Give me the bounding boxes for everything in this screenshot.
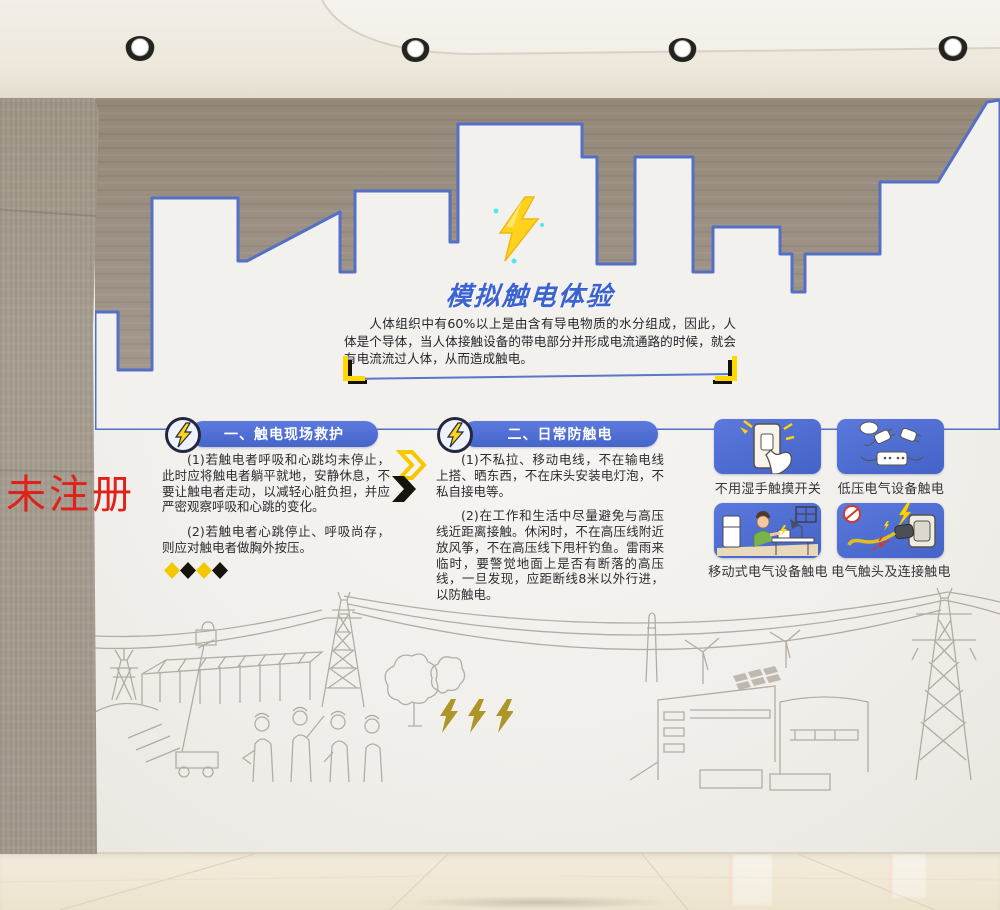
ceiling bbox=[0, 0, 1000, 98]
diamond-divider bbox=[163, 562, 231, 579]
wall-seam bbox=[0, 208, 102, 217]
spotlight bbox=[125, 36, 155, 61]
section-heading-label: 一、触电现场救护 bbox=[224, 424, 344, 444]
hazard-card bbox=[714, 419, 821, 474]
factory-drawing bbox=[630, 686, 868, 790]
portable-appliance-icon bbox=[714, 503, 821, 558]
section-paragraph: (2)若触电者心跳停止、呼吸尚存，则应对触电者做胸外按压。 bbox=[162, 524, 390, 556]
section-heading-prevention: 二、日常防触电 bbox=[462, 421, 658, 447]
section-paragraph: (1)不私拉、移动电线，不在输电线上搭、晒东西，不在床头安装电灯泡，不私自接电等… bbox=[436, 452, 664, 499]
left-side-wall bbox=[0, 0, 102, 854]
section-heading-label: 二、日常防触电 bbox=[508, 424, 613, 444]
kiosk-shadow bbox=[406, 896, 674, 909]
floor-reflection bbox=[730, 855, 772, 905]
small-tower-drawing bbox=[110, 648, 138, 700]
left-pylon-drawing bbox=[322, 592, 364, 707]
corner-bracket-right bbox=[715, 356, 737, 381]
kiosk-front-bolts-icon bbox=[437, 699, 513, 733]
section-first-aid-body: (1)若触电者呼吸和心跳均未停止，此时应将触电者躺平就地，安静休息，不要让触电者… bbox=[162, 452, 390, 565]
bolt-circle-badge-icon bbox=[164, 416, 202, 454]
section-paragraph: (2)在工作和生活中尽量避免与高压线近距离接触。休闲时，不在高压线附近放风筝，不… bbox=[436, 508, 664, 603]
hazard-card bbox=[837, 503, 944, 558]
power-grid-mural bbox=[90, 575, 1000, 860]
right-pylon-drawing bbox=[912, 588, 976, 780]
hazard-card-label: 不用湿手触摸开关 bbox=[708, 478, 828, 497]
section-paragraph: (1)若触电者呼吸和心跳均未停止，此时应将触电者躺平就地，安静休息，不要让触电者… bbox=[162, 452, 390, 515]
wet-hand-switch-icon bbox=[714, 419, 821, 474]
poster-title: 模拟触电体验 bbox=[423, 276, 638, 313]
chevron-arrow-icon bbox=[390, 450, 430, 504]
bolt-circle-badge-icon bbox=[436, 416, 474, 454]
road-marks-drawing bbox=[128, 724, 180, 762]
hazard-card-label: 移动式电气设备触电 bbox=[708, 561, 828, 580]
floor-reflection bbox=[890, 854, 926, 898]
spotlight bbox=[938, 36, 968, 61]
substation-drawing bbox=[142, 652, 322, 704]
low-voltage-plugs-icon bbox=[837, 419, 944, 474]
hazard-card bbox=[837, 419, 944, 474]
plug-socket-spark-icon bbox=[837, 503, 944, 558]
section-heading-first-aid: 一、触电现场救护 bbox=[190, 421, 378, 447]
section-prevention-body: (1)不私拉、移动电线，不在输电线上搭、晒东西，不在床头安装电灯泡，不私自接电等… bbox=[436, 452, 664, 612]
workers-drawing bbox=[243, 708, 382, 783]
watermark-text: 未注册 bbox=[6, 462, 135, 520]
hill-drawing bbox=[95, 703, 158, 712]
spotlight bbox=[401, 38, 430, 62]
lightning-bolt-3d-icon bbox=[492, 195, 546, 265]
intro-underline-brackets bbox=[340, 350, 740, 386]
hazard-card bbox=[714, 503, 821, 558]
spotlight bbox=[668, 38, 697, 62]
hazard-card-label: 电气触头及连接触电 bbox=[831, 561, 951, 580]
exhibition-scene: 模拟触电体验 人体组织中有60%以上是由含有导电物质的水分组成，因此，人体是个导… bbox=[0, 0, 1000, 910]
hazard-card-label: 低压电气设备触电 bbox=[831, 478, 951, 497]
corner-bracket-left bbox=[343, 356, 365, 381]
